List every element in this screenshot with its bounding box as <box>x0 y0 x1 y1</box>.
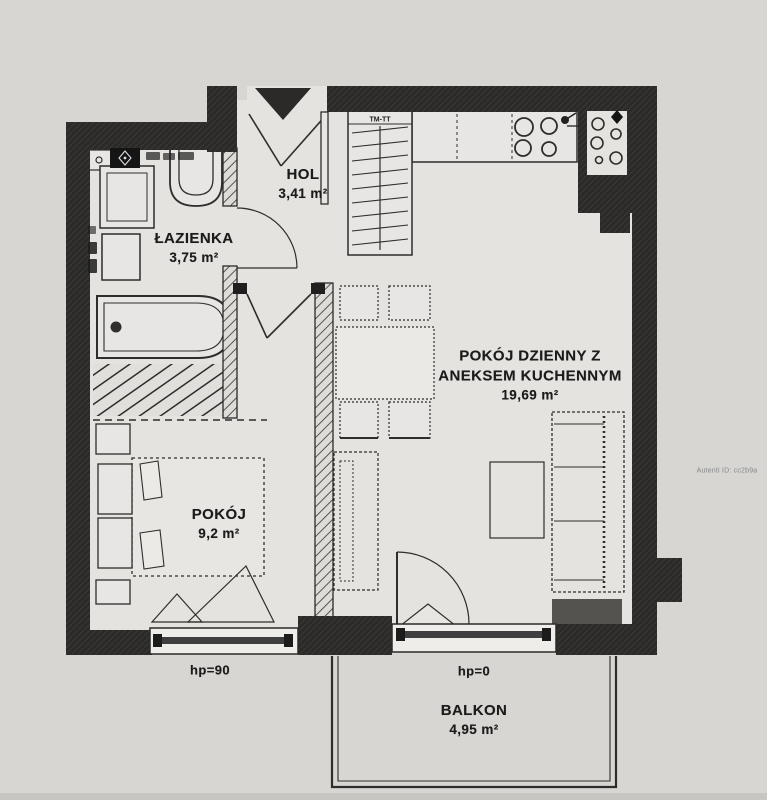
room-area: 3,75 m² <box>154 249 233 267</box>
window-height-label-hp90: hp=90 <box>190 661 230 678</box>
bedroom-window <box>150 628 298 654</box>
room-name-line2: ANEKSEM KUCHENNYM <box>438 366 621 386</box>
dining-table-icon <box>336 327 434 399</box>
chair-icon <box>340 402 378 438</box>
bathtub-icon <box>97 296 231 358</box>
window-height-label-hp0: hp=0 <box>458 662 490 679</box>
door-jamb <box>311 283 325 294</box>
watermark-text: Autenti ID: cc2b9a <box>697 468 758 475</box>
duct-hatch-area <box>93 364 233 416</box>
room-label-balcony: BALKON 4,95 m² <box>441 701 508 739</box>
hall-rack <box>348 108 412 255</box>
utility-shaft <box>587 110 627 175</box>
toilet-icon <box>170 150 222 206</box>
room-area: 4,95 m² <box>441 721 508 739</box>
balcony-door-window <box>392 624 556 652</box>
room-name: POKÓJ <box>192 505 247 525</box>
washing-machine-icon <box>100 166 154 228</box>
room-label-hol: HOL 3,41 m² <box>278 165 327 203</box>
room-name: HOL <box>278 165 327 185</box>
chair-icon <box>389 286 430 320</box>
door-jamb <box>233 283 247 294</box>
floor-plan-page: HOL 3,41 m² ŁAZIENKA 3,75 m² POKÓJ DZIEN… <box>0 0 767 800</box>
room-name: ŁAZIENKA <box>154 229 233 249</box>
room-label-bathroom: ŁAZIENKA 3,75 m² <box>154 229 233 267</box>
room-area: 19,69 m² <box>438 386 621 404</box>
room-label-living: POKÓJ DZIENNY Z ANEKSEM KUCHENNYM 19,69 … <box>438 346 621 403</box>
kitchen-counter <box>412 108 577 162</box>
bathroom-cabinet-icon <box>102 234 140 280</box>
room-name-line1: POKÓJ DZIENNY Z <box>438 346 621 366</box>
room-name: BALKON <box>441 701 508 721</box>
room-area: 3,41 m² <box>278 185 327 203</box>
shaft-label: TM-TT <box>370 115 391 124</box>
chair-icon <box>389 402 430 438</box>
scan-edge <box>0 793 767 800</box>
room-label-bedroom: POKÓJ 9,2 m² <box>192 505 247 543</box>
chair-icon <box>340 286 378 320</box>
bathroom-shaft <box>110 148 140 168</box>
room-area: 9,2 m² <box>192 525 247 543</box>
radiator-bench <box>552 599 622 626</box>
